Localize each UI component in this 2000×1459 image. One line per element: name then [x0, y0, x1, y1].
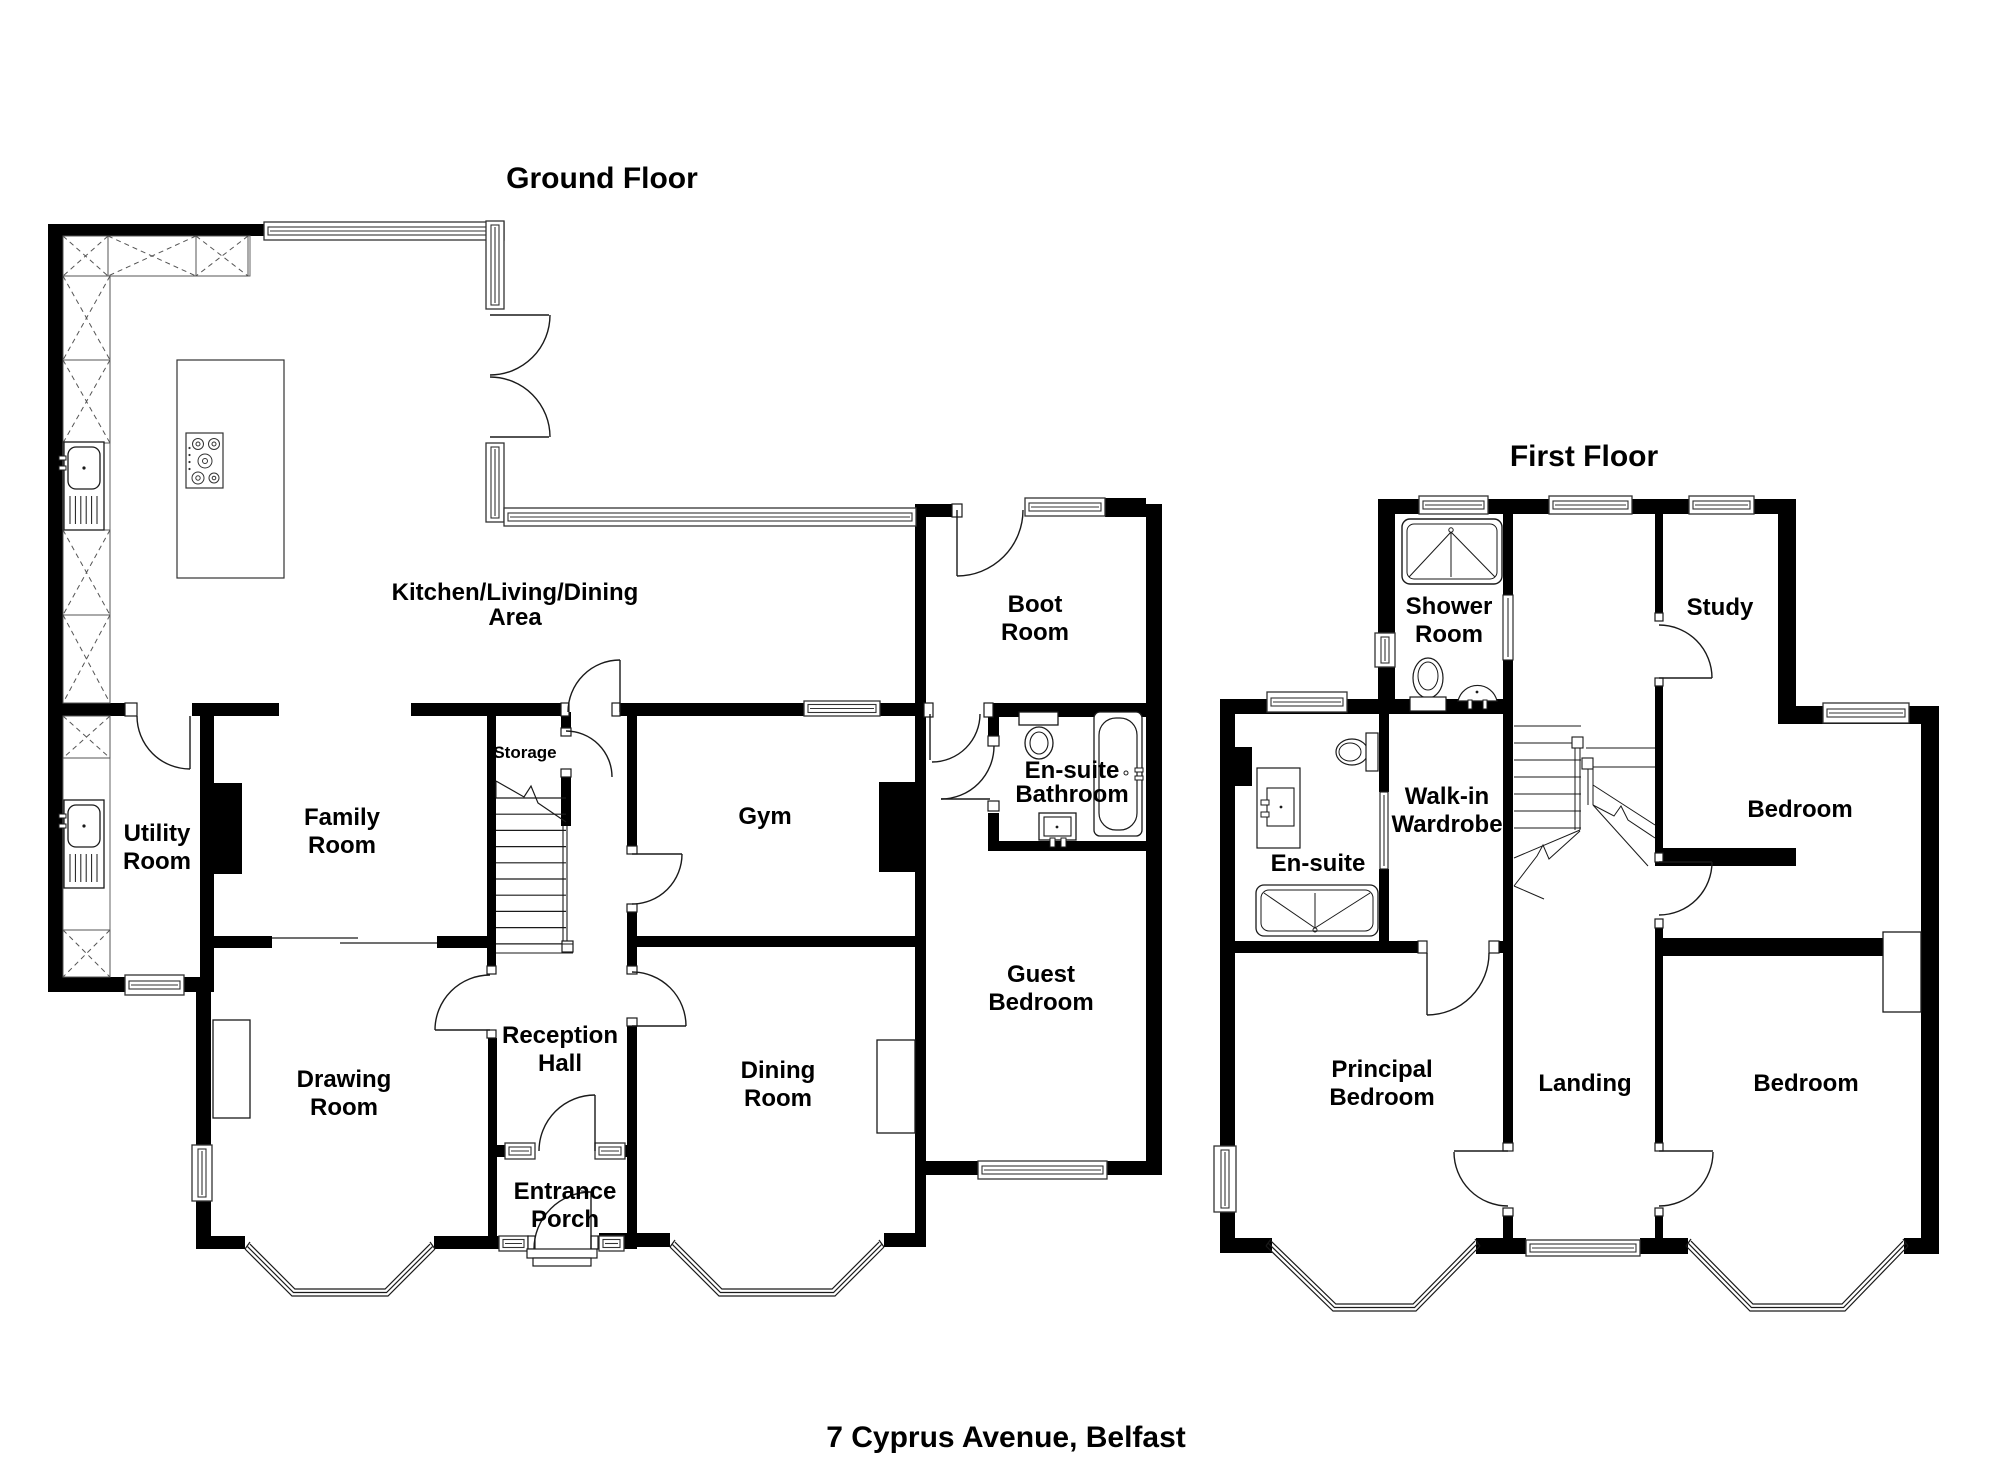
svg-text:En-suite: En-suite: [1025, 757, 1120, 784]
svg-text:Room: Room: [310, 1094, 378, 1121]
svg-text:Room: Room: [744, 1085, 812, 1112]
svg-text:7 Cyprus Avenue, Belfast: 7 Cyprus Avenue, Belfast: [826, 1421, 1186, 1454]
svg-text:Bedroom: Bedroom: [1747, 796, 1852, 823]
svg-text:Walk-in: Walk-in: [1405, 783, 1489, 810]
svg-text:Gym: Gym: [738, 803, 791, 830]
svg-text:Bedroom: Bedroom: [988, 989, 1093, 1016]
svg-text:Dining: Dining: [741, 1057, 816, 1084]
svg-text:First Floor: First Floor: [1510, 440, 1659, 473]
svg-text:Reception: Reception: [502, 1022, 618, 1049]
svg-text:Landing: Landing: [1538, 1070, 1631, 1097]
svg-text:Entrance: Entrance: [514, 1178, 617, 1205]
svg-text:Kitchen/Living/Dining: Kitchen/Living/Dining: [392, 579, 639, 606]
svg-text:Room: Room: [1001, 619, 1069, 646]
svg-text:Study: Study: [1687, 594, 1754, 621]
svg-text:Wardrobe: Wardrobe: [1391, 811, 1502, 838]
svg-text:Bathroom: Bathroom: [1015, 781, 1128, 808]
svg-text:Room: Room: [308, 832, 376, 859]
svg-text:Drawing: Drawing: [297, 1066, 392, 1093]
svg-text:Bedroom: Bedroom: [1329, 1084, 1434, 1111]
svg-text:En-suite: En-suite: [1271, 850, 1366, 877]
svg-text:Shower: Shower: [1406, 593, 1493, 620]
svg-text:Bedroom: Bedroom: [1753, 1070, 1858, 1097]
svg-text:Guest: Guest: [1007, 961, 1075, 988]
svg-text:Room: Room: [123, 848, 191, 875]
svg-text:Room: Room: [1415, 621, 1483, 648]
svg-text:Hall: Hall: [538, 1050, 582, 1077]
svg-text:Principal: Principal: [1331, 1056, 1432, 1083]
svg-text:Area: Area: [488, 604, 542, 631]
svg-text:Porch: Porch: [531, 1206, 599, 1233]
svg-text:Utility: Utility: [124, 820, 191, 847]
svg-text:Ground Floor: Ground Floor: [506, 162, 698, 195]
svg-text:Boot: Boot: [1008, 591, 1063, 618]
svg-text:Family: Family: [304, 804, 381, 831]
svg-text:Storage: Storage: [493, 743, 556, 762]
